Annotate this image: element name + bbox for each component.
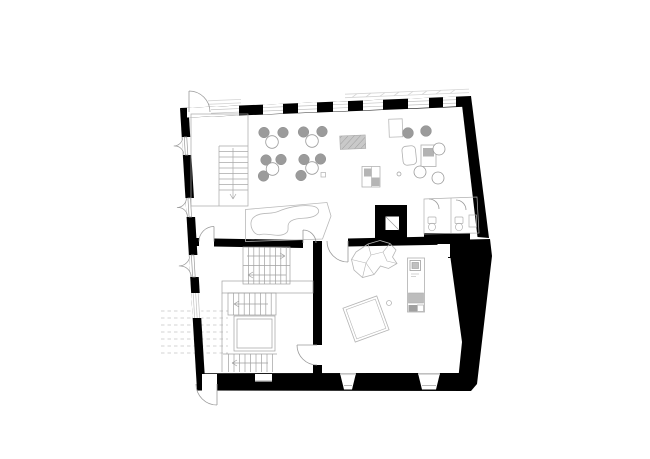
floorplan-page xyxy=(0,0,650,459)
chimney-flue xyxy=(386,217,400,231)
chair-symbol xyxy=(317,126,328,137)
table-symbol xyxy=(306,162,319,175)
rear-door-opening xyxy=(202,374,217,392)
table-symbol xyxy=(266,163,279,176)
window-opening xyxy=(211,106,239,117)
window-opening xyxy=(298,102,317,113)
chair-symbol xyxy=(296,170,307,181)
chair-symbol xyxy=(315,154,326,165)
wc-wall-block-1 xyxy=(424,233,470,243)
chair-symbol xyxy=(276,154,287,165)
chair-symbol xyxy=(278,127,289,138)
interior-wall-b-lower xyxy=(313,365,322,375)
interior-wall-b xyxy=(313,241,322,345)
wc-wall-niche xyxy=(438,244,451,257)
floorplan-svg xyxy=(0,0,650,459)
round-chair-symbol xyxy=(414,166,426,178)
window-opening xyxy=(363,100,383,111)
window-opening xyxy=(263,104,283,115)
stool-symbol xyxy=(403,128,414,139)
window-opening xyxy=(443,97,456,107)
lounge-table-tray xyxy=(423,148,434,157)
stool-symbol xyxy=(421,126,432,137)
wc-wall-block-2 xyxy=(448,242,479,258)
window-opening xyxy=(333,101,348,111)
interior-wall-a-left xyxy=(190,238,199,246)
round-chair-symbol xyxy=(432,172,444,184)
window-opening xyxy=(408,98,429,109)
table-symbol xyxy=(266,136,279,149)
entrance-opening xyxy=(187,107,211,118)
table-symbol xyxy=(306,135,319,148)
chair-symbol xyxy=(259,127,270,138)
round-chair-symbol xyxy=(433,143,445,155)
chair-symbol xyxy=(298,127,309,138)
buffet-counter-hatched xyxy=(340,135,366,150)
